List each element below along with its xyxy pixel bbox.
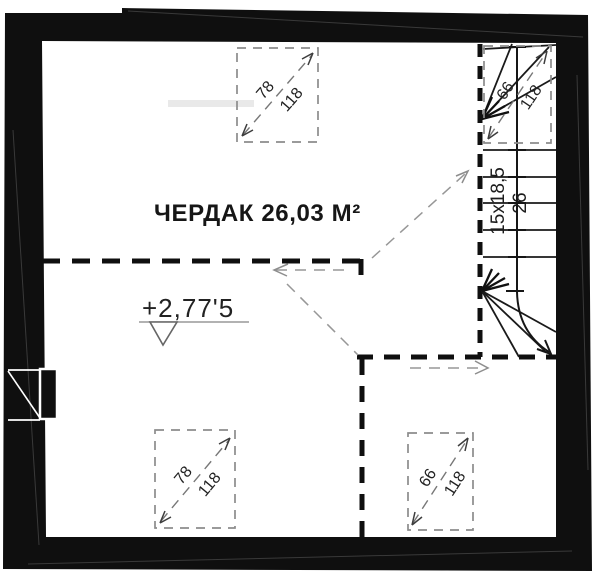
floor-plan: 15x18,5 26 66 118 78 118 <box>0 0 600 579</box>
floor-plan-drawing: 15x18,5 26 66 118 78 118 <box>0 0 600 579</box>
scan-smudge <box>168 100 254 107</box>
window-frame <box>40 369 57 419</box>
stair-width-label: 26 <box>510 192 531 213</box>
room-title: ЧЕРДАК 26,03 М² <box>154 200 361 227</box>
elevation-value: +2,77'5 <box>142 293 234 323</box>
stair-steps-label: 15x18,5 <box>488 167 509 235</box>
